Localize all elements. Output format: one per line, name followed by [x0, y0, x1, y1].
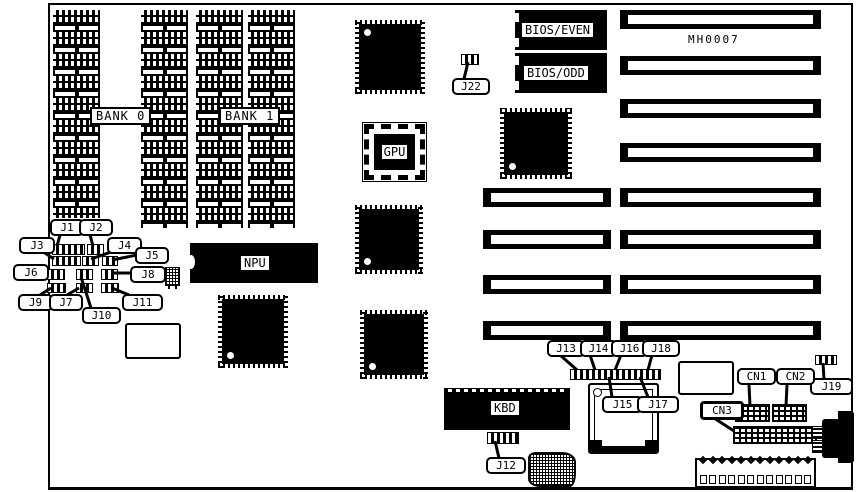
jumper-header-j9 — [47, 283, 66, 293]
expansion-slot-2 — [620, 56, 821, 75]
expansion-slot-7-ext — [483, 275, 611, 294]
jumper-label-j18: J18 — [642, 340, 680, 357]
dip-chip — [141, 32, 188, 54]
connector-label-cn3: CN3 — [700, 401, 744, 420]
dip-chip — [248, 164, 295, 186]
bank0-label: BANK 0 — [90, 107, 151, 125]
power-pin — [718, 456, 726, 464]
jumper-header-j11 — [101, 283, 119, 293]
qfp-chip-below-npu — [218, 295, 288, 368]
jumper-header-j19 — [815, 355, 837, 365]
expansion-slot-6-ext — [483, 230, 611, 249]
expansion-slot-1 — [620, 10, 821, 29]
expansion-slot-5-ext — [483, 188, 611, 207]
jumper-label-j17: J17 — [637, 396, 679, 413]
dip-chip — [53, 164, 100, 186]
power-socket — [776, 475, 783, 484]
jumper-label-j8: J8 — [130, 266, 166, 283]
kbd-chip: KBD — [444, 388, 570, 430]
jumper-label-j9: J9 — [18, 294, 53, 311]
keyboard-din-body — [822, 419, 840, 458]
jumper-header-j10 — [76, 269, 93, 280]
power-pin — [785, 456, 793, 464]
expansion-slot-8-ext — [483, 321, 611, 340]
connector-label-cn2: CN2 — [776, 368, 815, 385]
power-pin — [746, 456, 754, 464]
jumper-header-j22 — [461, 54, 479, 65]
power-socket — [785, 475, 792, 484]
dip-chip — [141, 54, 188, 76]
power-socket — [804, 475, 811, 484]
power-socket — [747, 475, 754, 484]
expansion-slot-4 — [620, 143, 821, 162]
dip-chip — [248, 32, 295, 54]
jumper-label-j7: J7 — [49, 294, 83, 311]
jumper-header-j7 — [76, 283, 93, 293]
power-socket — [795, 475, 802, 484]
npu-label: NPU — [241, 256, 269, 270]
dip-chip — [248, 10, 295, 32]
part-number: MH0007 — [688, 33, 740, 46]
bios-even-label: BIOS/EVEN — [522, 23, 593, 37]
jumper-label-j6: J6 — [13, 264, 49, 281]
dip-chip — [196, 142, 243, 164]
cn3-connector — [733, 426, 817, 444]
bank1-label: BANK 1 — [219, 107, 280, 125]
power-pin — [737, 456, 745, 464]
resonator — [165, 267, 180, 286]
keyboard-din-connector — [838, 411, 854, 463]
dip-chip — [196, 164, 243, 186]
dip-chip — [141, 76, 188, 98]
dip-chip — [196, 32, 243, 54]
qfp-chip-mid-1 — [355, 205, 423, 274]
dip-chip — [141, 208, 188, 228]
dip-chip — [53, 186, 100, 208]
dip-chip — [53, 76, 100, 98]
dip-chip — [53, 208, 100, 218]
din-pin-block-1 — [812, 426, 823, 439]
power-socket — [728, 475, 735, 484]
plcc-chip-bottom-right — [588, 383, 659, 454]
dip-chip — [248, 208, 295, 228]
crystal-right — [678, 361, 734, 395]
power-socket — [766, 475, 773, 484]
jumper-header-j12 — [487, 432, 519, 444]
power-pin — [765, 456, 773, 464]
gpu-label: GPU — [382, 145, 408, 159]
dip-chip — [248, 54, 295, 76]
bios-odd-chip: BIOS/ODD — [515, 53, 607, 93]
bios-odd-label: BIOS/ODD — [524, 66, 588, 80]
power-socket — [700, 475, 707, 484]
cn2-connector — [772, 404, 807, 422]
jumper-header-j8 — [101, 269, 118, 280]
power-pin — [727, 456, 735, 464]
expansion-slot-3 — [620, 99, 821, 118]
power-pin — [699, 456, 707, 464]
jumper-header-j1 — [52, 244, 85, 255]
power-socket — [757, 475, 764, 484]
connector-label-cn1: CN1 — [737, 368, 776, 385]
power-pin — [775, 456, 783, 464]
jumper-label-j11: J11 — [122, 294, 163, 311]
dip-chip — [141, 186, 188, 208]
jumper-header-j13-j18 — [570, 369, 661, 380]
motherboard-diagram: BANK 0 BANK 1 GPU NPU BIOS/EVEN BIOS/ODD… — [0, 0, 858, 492]
npu-chip: NPU — [190, 243, 318, 283]
power-pin — [708, 456, 716, 464]
jumper-label-j5: J5 — [135, 247, 169, 264]
power-connector — [695, 458, 816, 488]
expansion-slot-7 — [620, 275, 821, 294]
qfp-chip-mid-2 — [360, 310, 428, 379]
dip-chip — [53, 54, 100, 76]
jumper-header-j3 — [52, 256, 81, 266]
jumper-label-j10: J10 — [82, 307, 121, 324]
qfp-chip-right-center — [500, 108, 572, 179]
jumper-label-j3: J3 — [19, 237, 55, 254]
power-pin — [756, 456, 764, 464]
expansion-slot-6 — [620, 230, 821, 249]
jumper-header-j4 — [82, 256, 99, 266]
dip-chip — [53, 142, 100, 164]
dip-chip — [141, 164, 188, 186]
jumper-label-j19: J19 — [810, 378, 853, 395]
dip-chip — [196, 76, 243, 98]
dip-chip — [196, 208, 243, 228]
jumper-header-j5 — [102, 256, 118, 266]
gpu-socket: GPU — [362, 122, 427, 182]
power-socket — [709, 475, 716, 484]
qfp-chip-top-center — [355, 20, 425, 94]
power-pin — [794, 456, 802, 464]
dip-chip — [196, 10, 243, 32]
dip-chip — [141, 10, 188, 32]
jumper-header-j2 — [87, 244, 104, 255]
dip-chip — [141, 142, 188, 164]
jumper-label-j22: J22 — [452, 78, 490, 95]
power-pin — [804, 456, 812, 464]
dip-chip — [53, 32, 100, 54]
kbd-label: KBD — [491, 401, 519, 415]
bios-even-chip: BIOS/EVEN — [515, 10, 607, 50]
dip-chip — [196, 186, 243, 208]
jumper-header-j6 — [47, 269, 65, 280]
dip-chip — [248, 186, 295, 208]
power-socket — [738, 475, 745, 484]
din-pin-block-2 — [812, 440, 823, 453]
crystal-left — [125, 323, 181, 359]
dip-chip — [248, 76, 295, 98]
dip-chip — [53, 10, 100, 32]
expansion-slot-5 — [620, 188, 821, 207]
jumper-label-j12: J12 — [486, 457, 526, 474]
dip-chip — [196, 54, 243, 76]
hatched-sticker — [528, 452, 576, 487]
expansion-slot-8 — [620, 321, 821, 340]
dip-chip — [248, 142, 295, 164]
jumper-label-j2: J2 — [79, 219, 113, 236]
power-socket — [719, 475, 726, 484]
